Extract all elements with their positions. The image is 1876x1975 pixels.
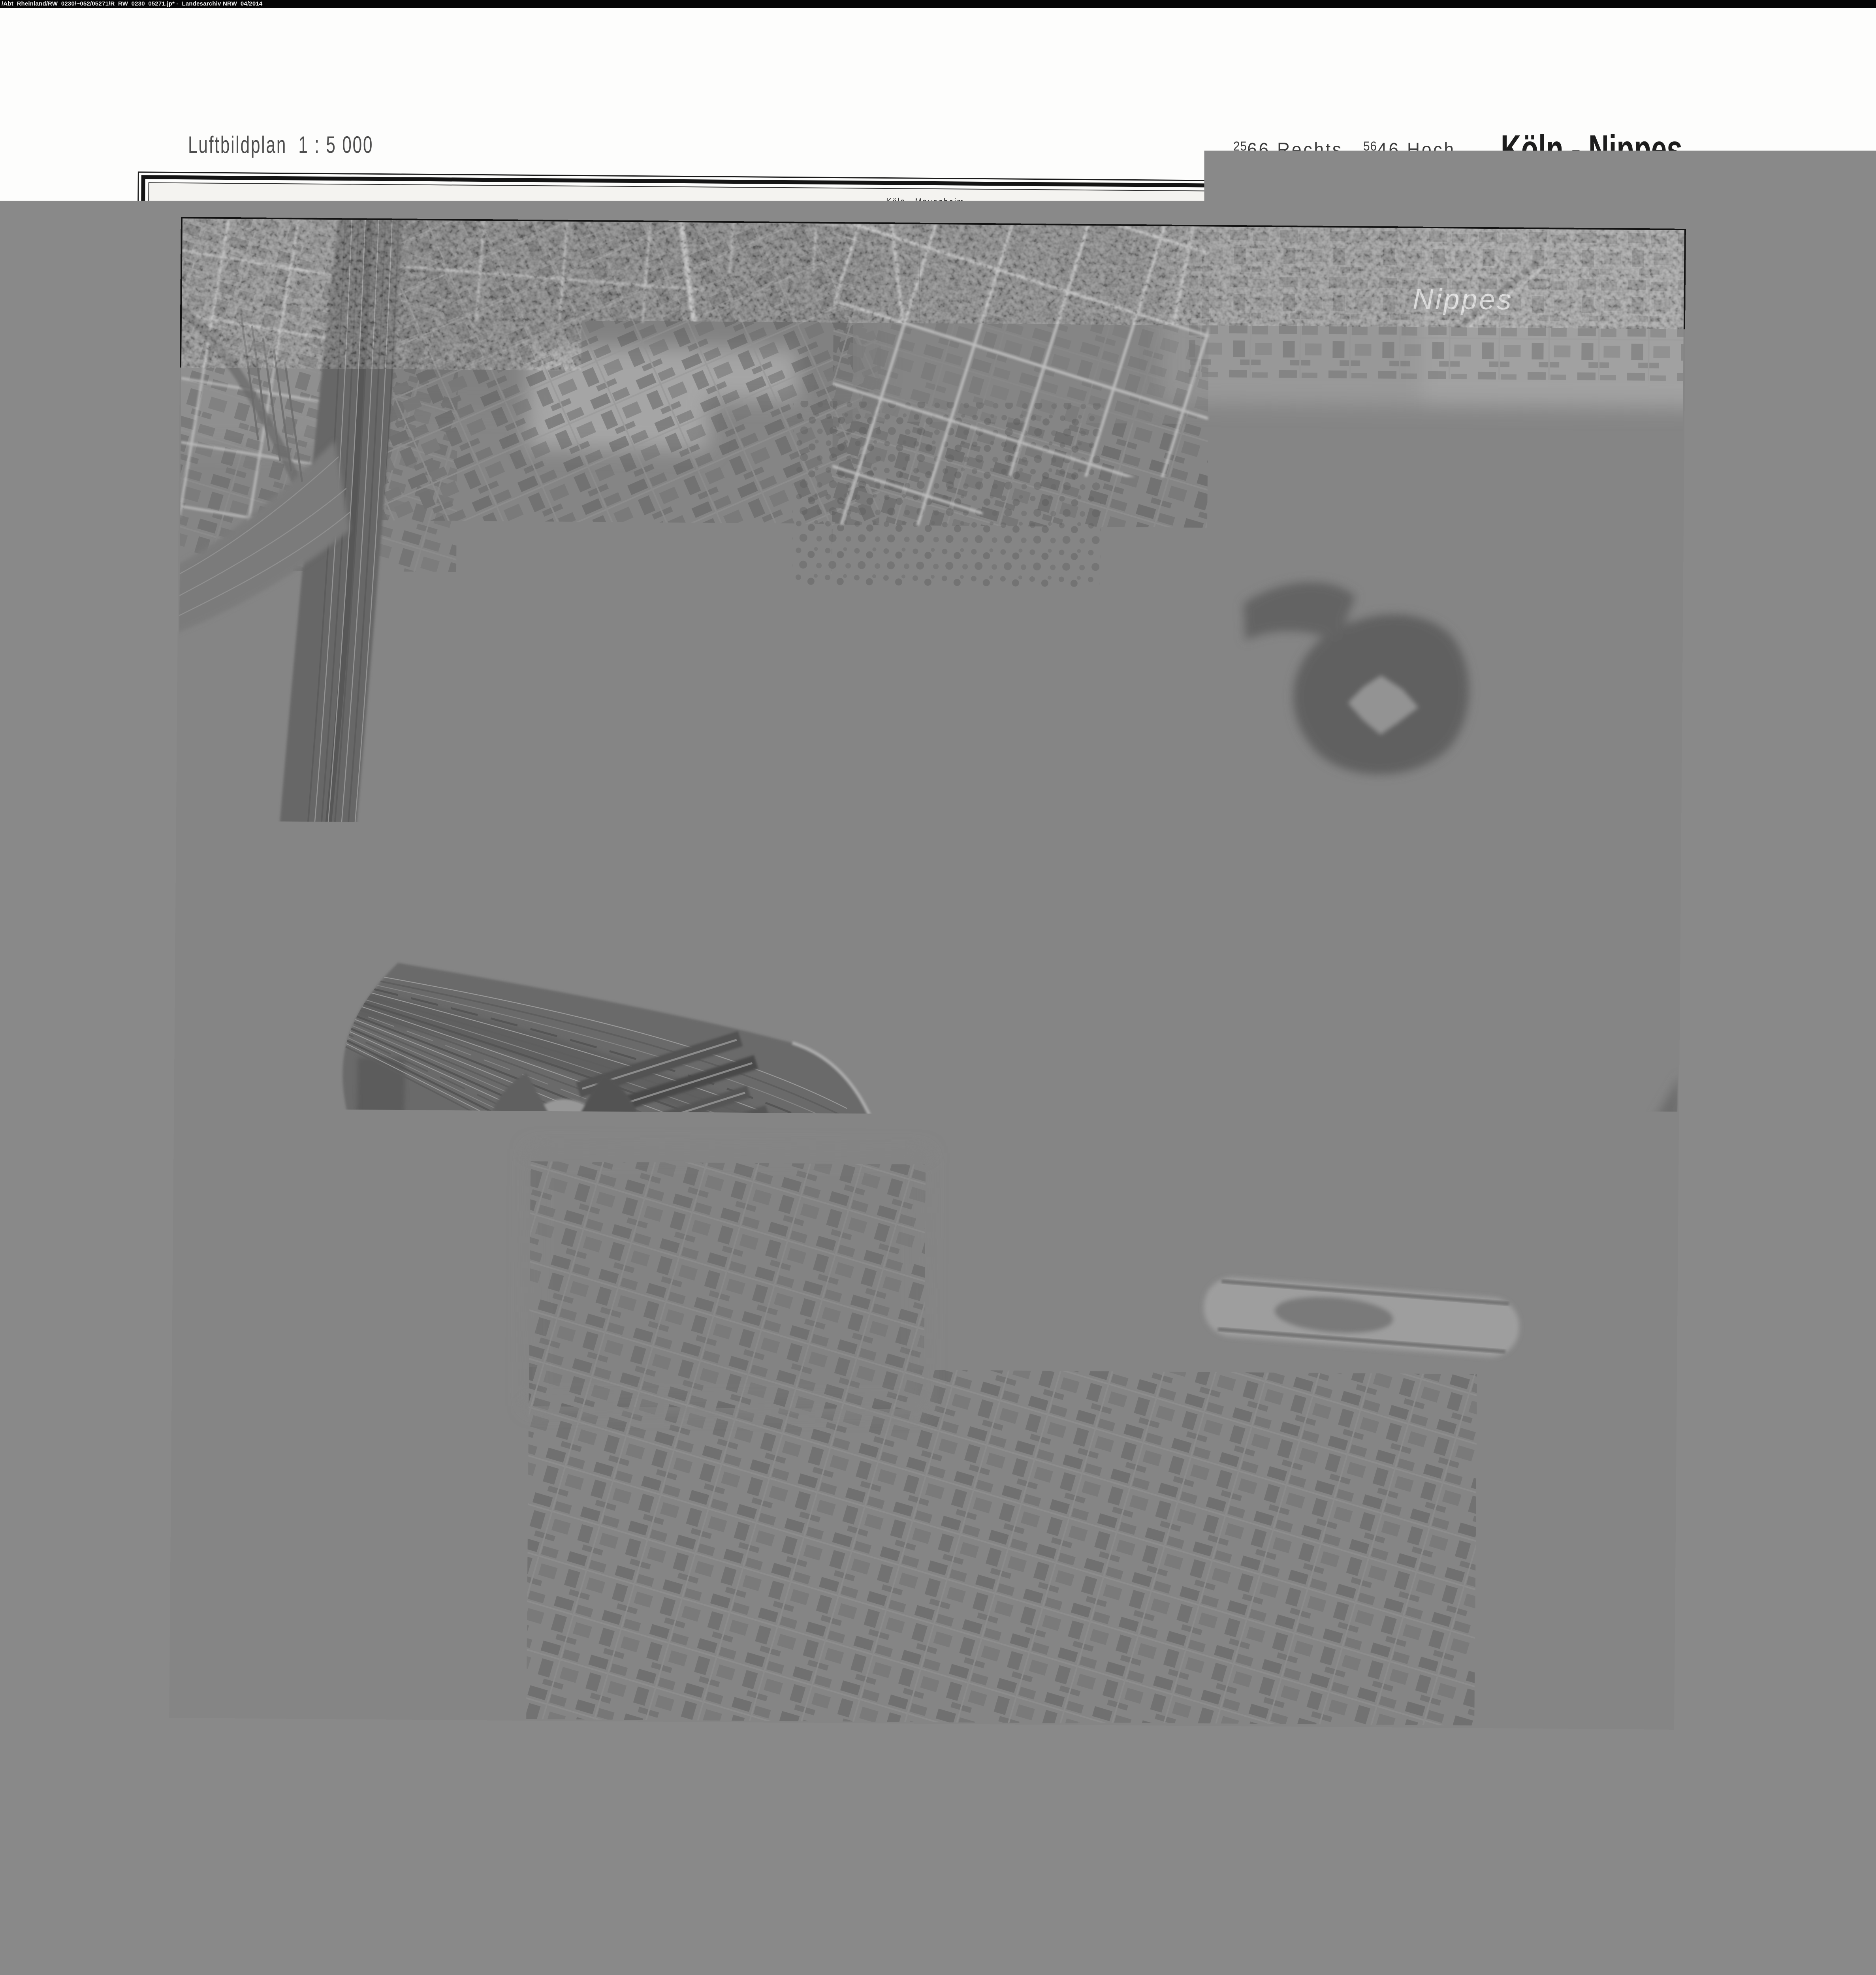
svg-text:200: 200 xyxy=(909,1834,930,1848)
svg-text:400: 400 xyxy=(1059,1834,1081,1848)
svg-text:100: 100 xyxy=(683,1832,704,1846)
svg-text:500: 500 xyxy=(1135,1834,1156,1847)
svg-text:m: m xyxy=(1160,1834,1170,1847)
svg-text:100: 100 xyxy=(834,1833,855,1847)
svg-text:0: 0 xyxy=(765,1834,772,1847)
svg-text:300: 300 xyxy=(984,1835,1006,1849)
